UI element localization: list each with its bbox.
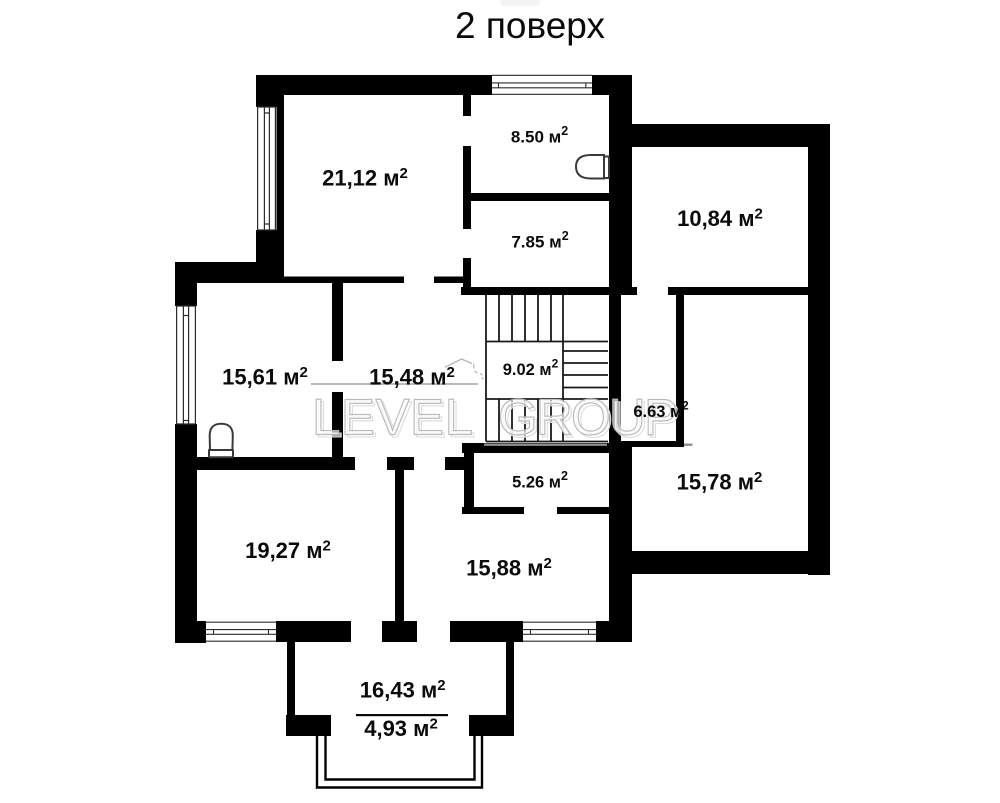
svg-text:2 поверх: 2 поверх: [455, 5, 605, 46]
svg-text:4,93 м2: 4,93 м2: [364, 716, 438, 742]
svg-text:15,61 м2: 15,61 м2: [222, 364, 308, 390]
svg-text:19,27 м2: 19,27 м2: [245, 538, 331, 564]
svg-text:8.50 м2: 8.50 м2: [511, 124, 568, 147]
svg-text:15,88 м2: 15,88 м2: [466, 555, 552, 581]
svg-text:LEVEL: LEVEL: [312, 389, 473, 446]
svg-text:10,84 м2: 10,84 м2: [677, 205, 763, 231]
svg-text:16,43 м2: 16,43 м2: [360, 677, 446, 703]
svg-text:15,48 м2: 15,48 м2: [369, 364, 455, 390]
svg-text:15,78 м2: 15,78 м2: [677, 469, 763, 495]
svg-text:21,12 м2: 21,12 м2: [322, 165, 408, 191]
svg-text:6.63 м2: 6.63 м2: [633, 400, 688, 421]
svg-text:7.85 м2: 7.85 м2: [511, 229, 568, 252]
